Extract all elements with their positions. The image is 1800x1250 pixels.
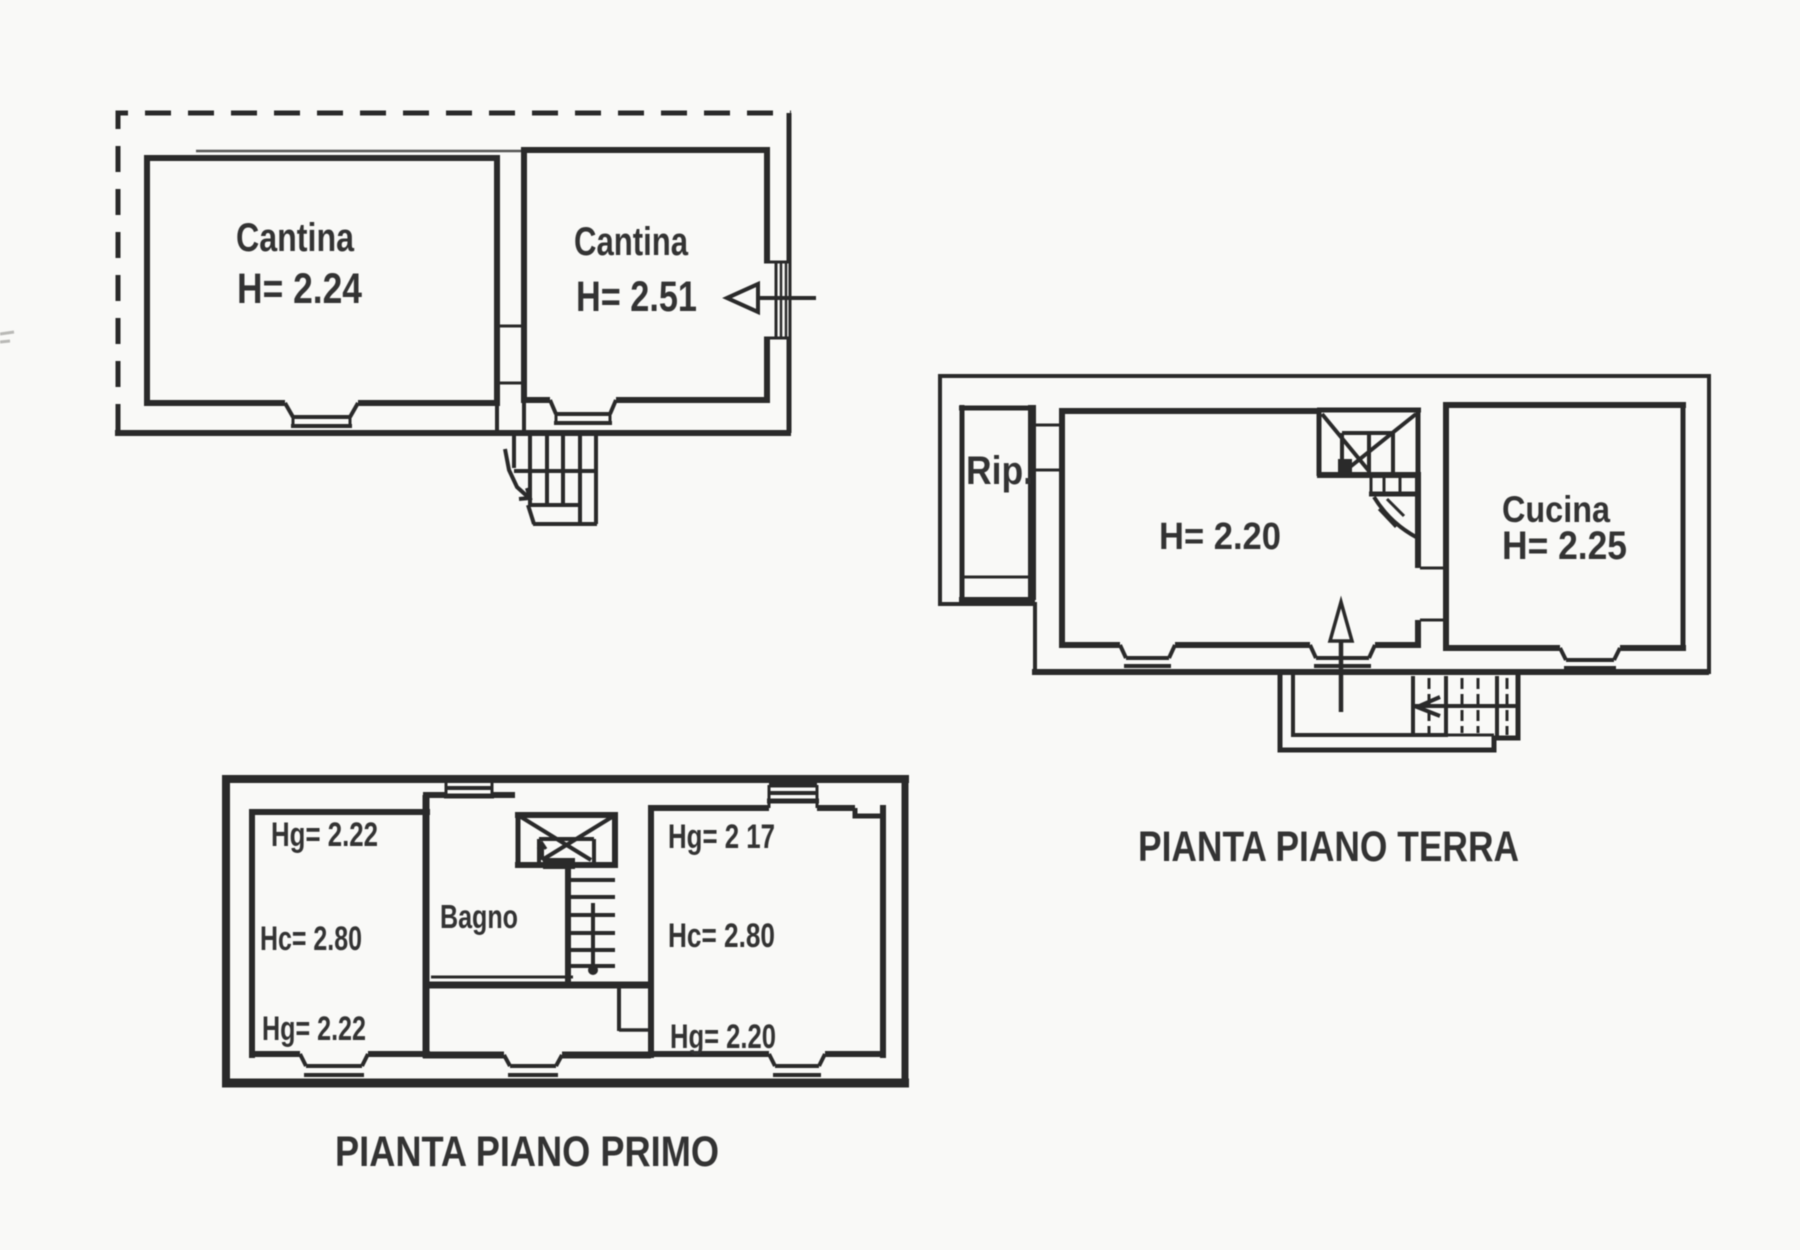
svg-text:Rip.: Rip. — [966, 449, 1033, 493]
svg-text:PIANTA PIANO TERRA: PIANTA PIANO TERRA — [1138, 823, 1519, 871]
svg-text:Hc= 2.80: Hc= 2.80 — [260, 920, 362, 958]
svg-text:Hg= 2.22: Hg= 2.22 — [271, 816, 378, 854]
svg-text:H= 2.20: H= 2.20 — [1159, 516, 1281, 558]
svg-text:Cantina: Cantina — [236, 216, 355, 260]
svg-text:Hc= 2.80: Hc= 2.80 — [668, 917, 775, 955]
svg-text:Cantina: Cantina — [574, 220, 689, 264]
svg-text:Bagno: Bagno — [440, 898, 518, 935]
svg-text:H= 2.51: H= 2.51 — [576, 273, 697, 321]
svg-text:Hg= 2.20: Hg= 2.20 — [670, 1018, 776, 1056]
svg-text:Hg= 2 17: Hg= 2 17 — [668, 818, 775, 856]
svg-text:H= 2.25: H= 2.25 — [1502, 524, 1627, 568]
svg-text:PIANTA PIANO PRIMO: PIANTA PIANO PRIMO — [335, 1128, 719, 1176]
svg-text:Hg= 2.22: Hg= 2.22 — [262, 1010, 366, 1048]
svg-text:H= 2.24: H= 2.24 — [237, 265, 362, 313]
